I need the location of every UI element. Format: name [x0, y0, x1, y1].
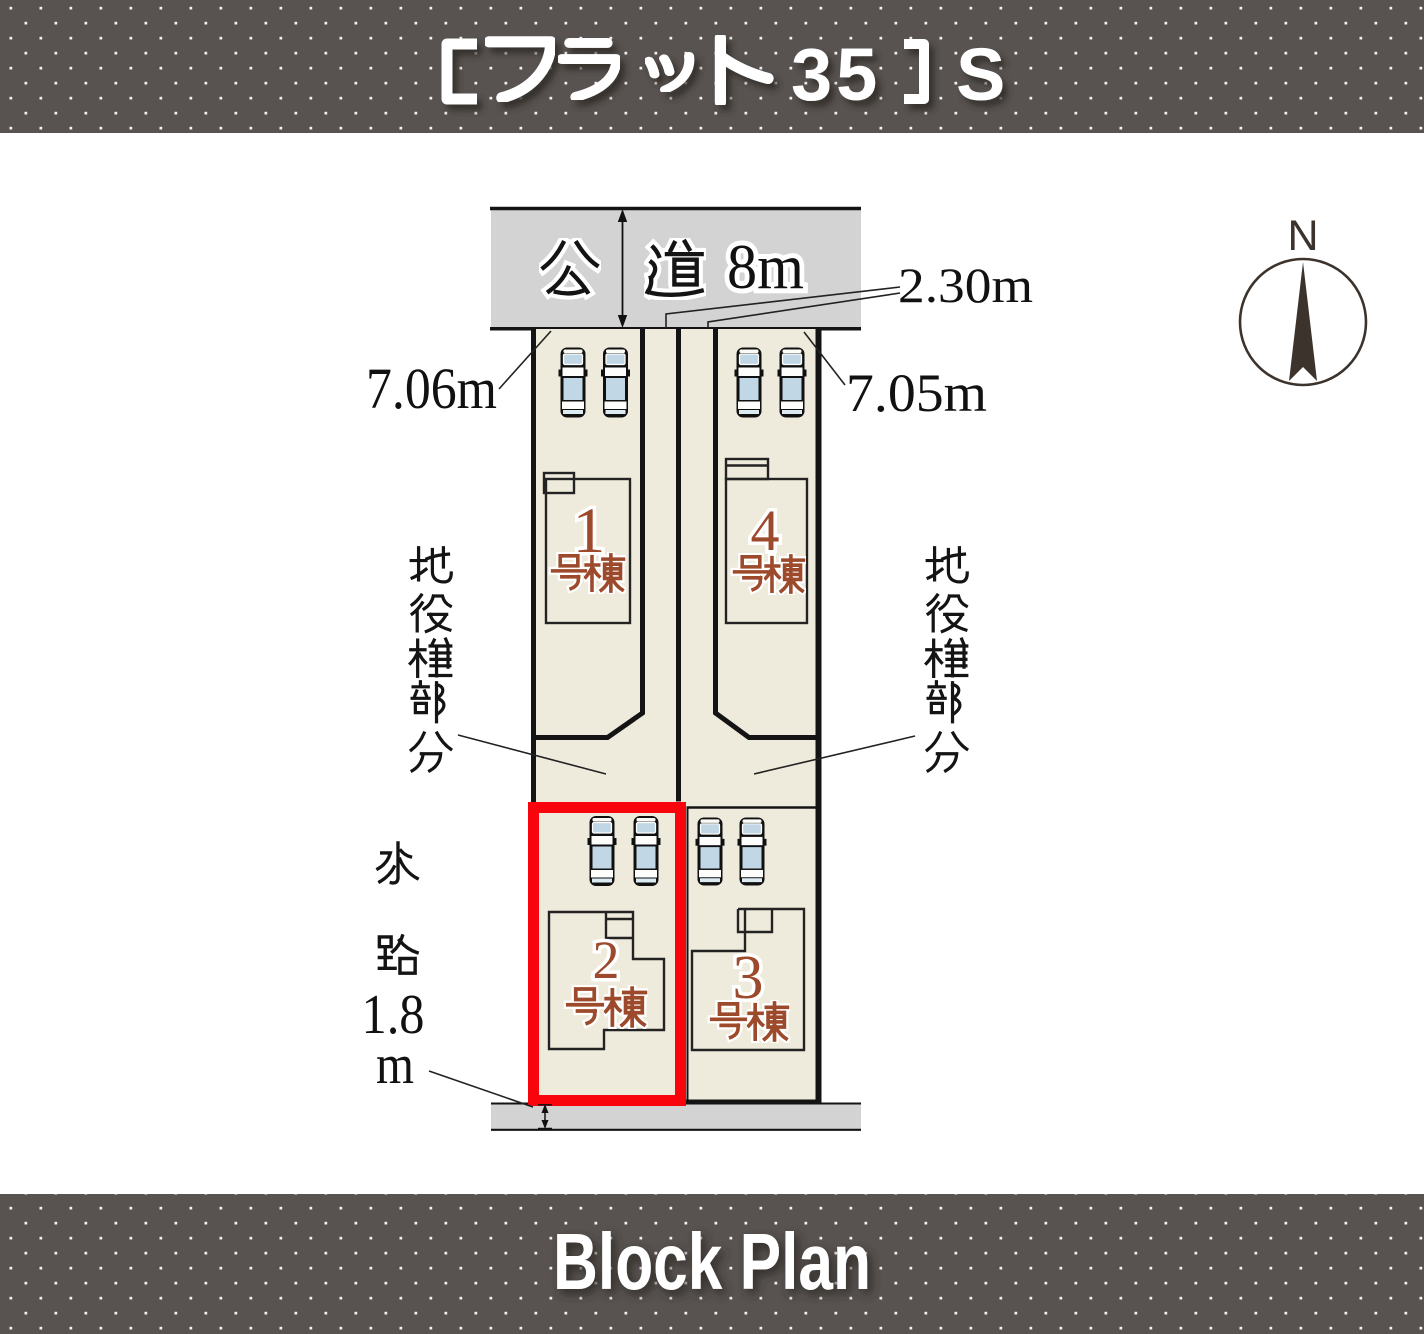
- svg-text:35: 35: [791, 33, 881, 116]
- svg-text:m: m: [376, 1034, 414, 1096]
- svg-text:2: 2: [593, 930, 620, 990]
- svg-text:7.06m: 7.06m: [366, 356, 497, 421]
- svg-text:N: N: [1287, 212, 1318, 260]
- svg-text:8m: 8m: [727, 232, 804, 302]
- svg-text:Block Plan: Block Plan: [553, 1217, 871, 1306]
- svg-text:2.30m: 2.30m: [898, 257, 1033, 313]
- svg-text:S: S: [956, 33, 1005, 116]
- svg-text:7.05m: 7.05m: [846, 363, 987, 423]
